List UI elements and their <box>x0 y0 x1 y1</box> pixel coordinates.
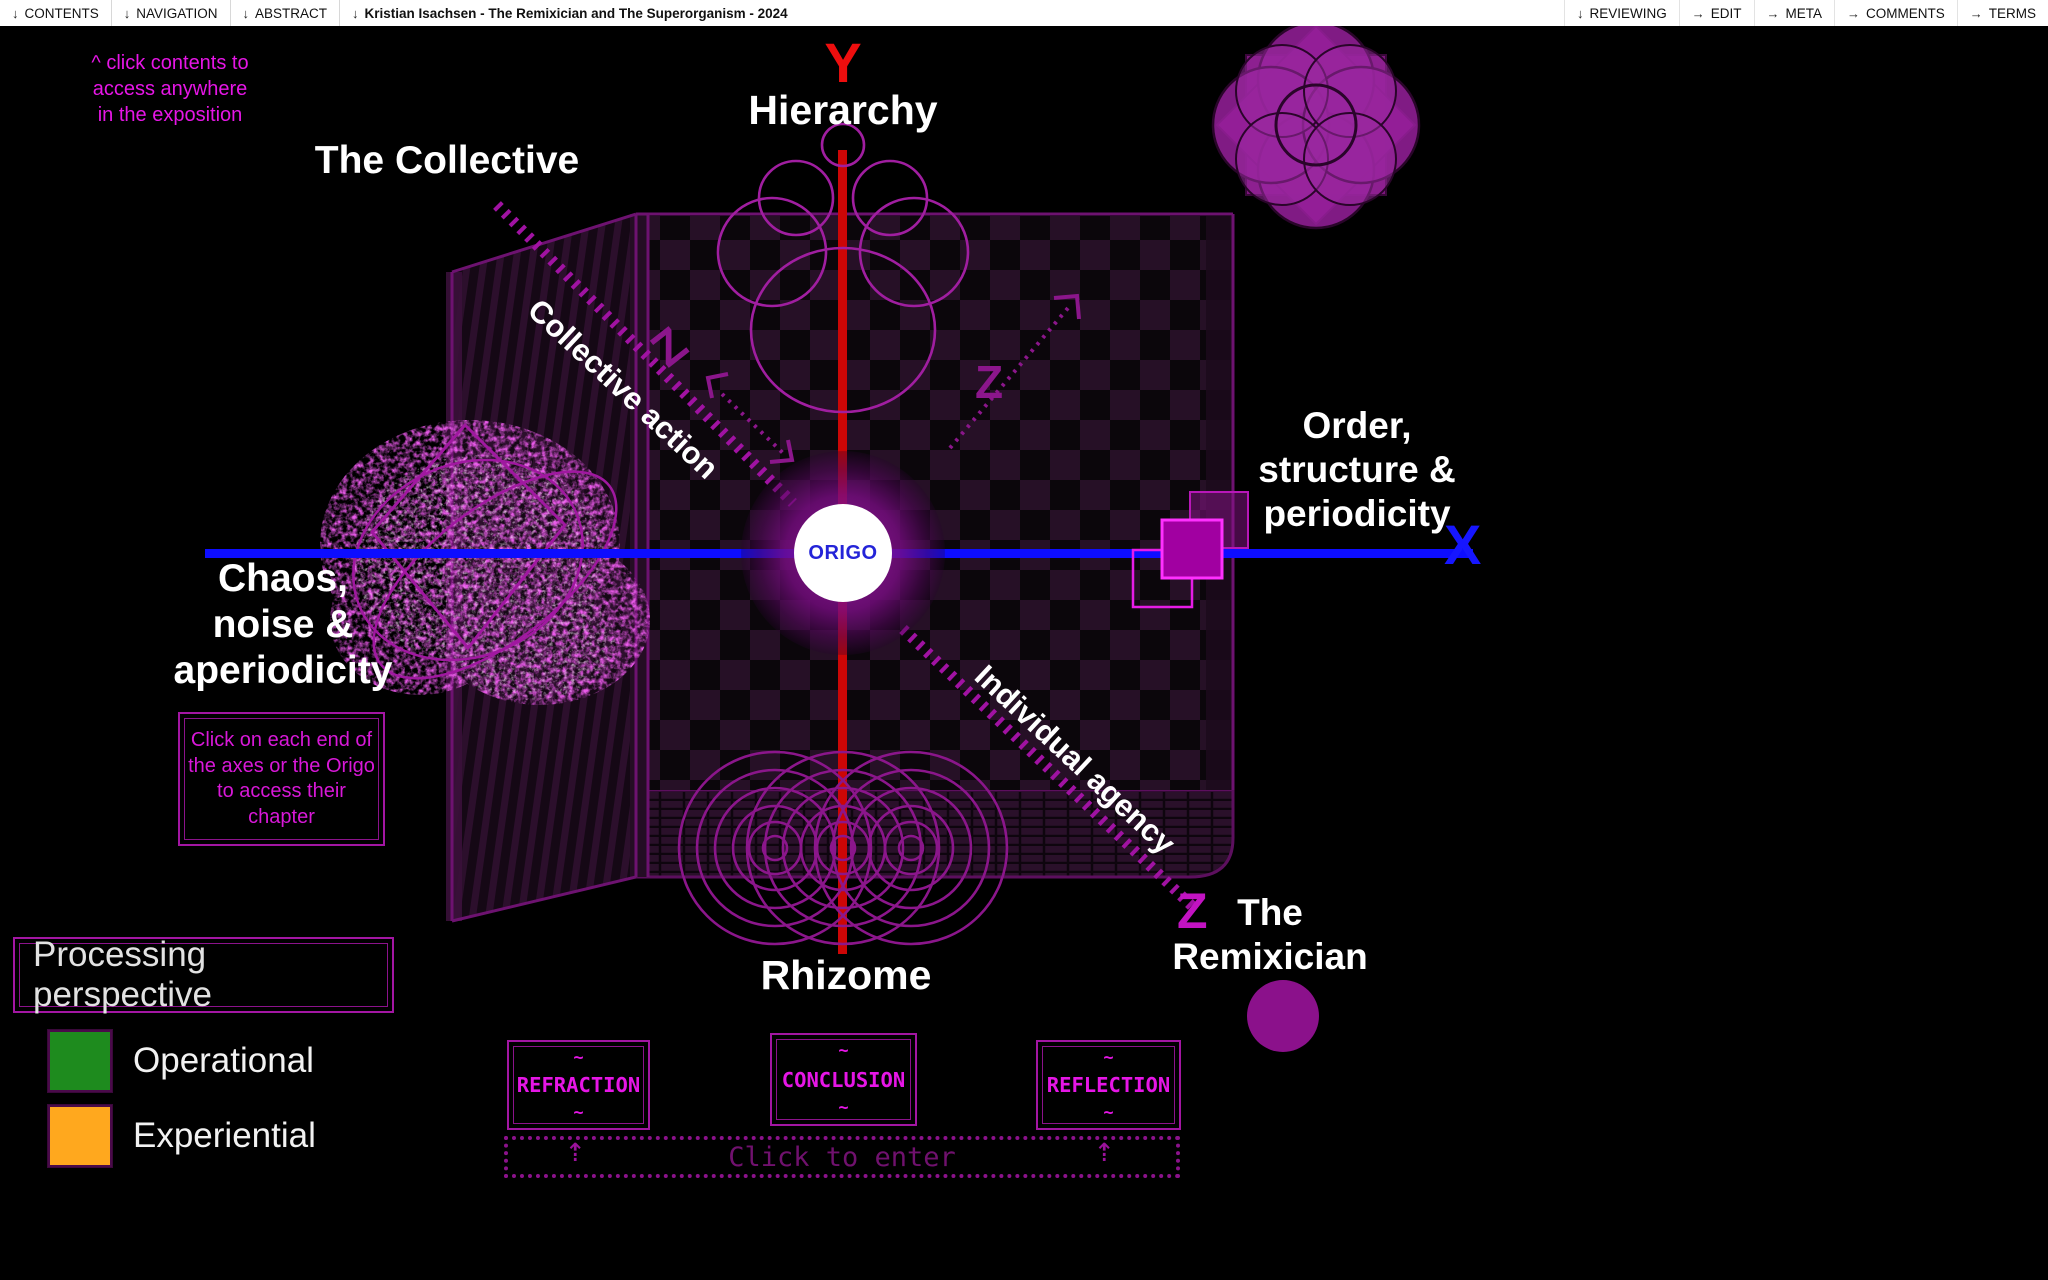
chapter-link-the-remixician[interactable]: The Remixician <box>1120 891 1420 979</box>
menu-label: CONTENTS <box>25 6 99 21</box>
tilde: ~ <box>573 1053 583 1063</box>
menu-label: REVIEWING <box>1589 6 1666 21</box>
legend-swatch-operational <box>48 1030 112 1092</box>
right-arrow-icon: → <box>1847 6 1860 21</box>
chapter-label: CONCLUSION <box>782 1068 905 1092</box>
menu-item-reviewing[interactable]: ↓ REVIEWING <box>1564 0 1679 26</box>
menu-right-group: ↓ REVIEWING → EDIT → META → COMMENTS → T… <box>1564 0 2048 26</box>
menu-left-group: ↓ CONTENTS ↓ NAVIGATION ↓ ABSTRACT ↓ Kri… <box>0 0 800 26</box>
menu-label: TERMS <box>1989 6 2036 21</box>
down-arrow-icon: ↓ <box>12 6 19 21</box>
label-line: The <box>1120 891 1420 935</box>
menu-item-abstract[interactable]: ↓ ABSTRACT <box>231 0 341 26</box>
instruction-line: chapter <box>180 805 383 831</box>
right-arrow-icon: → <box>1970 6 1983 21</box>
down-arrow-icon: ↓ <box>243 6 250 21</box>
mandala-flower-icon <box>1213 22 1419 228</box>
chapter-link-rhizome[interactable]: Rhizome <box>696 951 996 999</box>
down-arrow-icon: ↓ <box>352 6 359 21</box>
tilde: ~ <box>573 1108 583 1118</box>
chapter-box-conclusion[interactable]: ~ CONCLUSION ~ <box>770 1033 917 1126</box>
tilde: ~ <box>1103 1108 1113 1118</box>
down-arrow-icon: ↓ <box>1577 6 1584 21</box>
menu-item-terms[interactable]: → TERMS <box>1957 0 2048 26</box>
menu-label: COMMENTS <box>1866 6 1945 21</box>
chapter-link-the-collective[interactable]: The Collective <box>297 138 597 184</box>
right-arrow-icon: → <box>1692 6 1705 21</box>
menu-item-navigation[interactable]: ↓ NAVIGATION <box>112 0 231 26</box>
tilde: ~ <box>1103 1053 1113 1063</box>
instruction-line: the axes or the Origo <box>180 754 383 780</box>
dotted-up-arrow-icon: ⇡ <box>1094 1130 1114 1170</box>
menu-label: META <box>1786 6 1823 21</box>
exposition-canvas: ↓ CONTENTS ↓ NAVIGATION ↓ ABSTRACT ↓ Kri… <box>0 0 2048 1280</box>
label-line: structure & <box>1207 448 1507 492</box>
axes-instruction-box: Click on each end of the axes or the Ori… <box>178 712 385 846</box>
menu-label: EDIT <box>1711 6 1742 21</box>
label-line: Order, <box>1207 404 1507 448</box>
label-line: Chaos, <box>133 556 433 602</box>
instruction-line: to access their <box>180 779 383 805</box>
title-label: Kristian Isachsen - The Remixician and T… <box>365 6 788 21</box>
chapter-box-reflection[interactable]: ~ REFLECTION ~ <box>1036 1040 1181 1130</box>
menu-item-comments[interactable]: → COMMENTS <box>1834 0 1957 26</box>
chapter-link-order[interactable]: Order, structure & periodicity <box>1207 404 1507 536</box>
right-arrow-icon: → <box>1767 6 1780 21</box>
chapter-link-chaos[interactable]: Chaos, noise & aperiodicity <box>133 556 433 694</box>
instruction-line: Click on each end of <box>180 728 383 754</box>
legend-title-box: Processing perspective <box>13 937 394 1013</box>
legend-label-experiential: Experiential <box>133 1116 316 1156</box>
menu-label: NAVIGATION <box>136 6 217 21</box>
chapter-label: REFRACTION <box>517 1073 640 1097</box>
label-line: Remixician <box>1120 935 1420 979</box>
label-line: aperiodicity <box>133 648 433 694</box>
chapter-label: REFLECTION <box>1047 1073 1170 1097</box>
label-line: periodicity <box>1207 492 1507 536</box>
remixician-circle-icon <box>1247 980 1319 1052</box>
menu-item-contents[interactable]: ↓ CONTENTS <box>0 0 112 26</box>
enter-label: Click to enter <box>728 1142 956 1173</box>
legend-label-operational: Operational <box>133 1041 314 1081</box>
legend-title: Processing perspective <box>33 935 392 1015</box>
tilde: ~ <box>838 1046 848 1056</box>
exposition-title[interactable]: ↓ Kristian Isachsen - The Remixician and… <box>340 0 800 26</box>
z-axis-letter-mid: Z <box>975 355 1003 409</box>
click-to-enter-bar[interactable]: Click to enter <box>504 1136 1180 1178</box>
chapter-link-hierarchy[interactable]: Hierarchy <box>693 86 993 134</box>
chapter-box-refraction[interactable]: ~ REFRACTION ~ <box>507 1040 650 1130</box>
down-arrow-icon: ↓ <box>124 6 131 21</box>
label-line: noise & <box>133 602 433 648</box>
tilde: ~ <box>838 1103 848 1113</box>
menu-label: ABSTRACT <box>255 6 327 21</box>
menu-item-meta[interactable]: → META <box>1754 0 1835 26</box>
origo-button[interactable]: ORIGO <box>794 504 892 602</box>
dotted-up-arrow-icon: ⇡ <box>565 1130 585 1170</box>
top-menu-bar: ↓ CONTENTS ↓ NAVIGATION ↓ ABSTRACT ↓ Kri… <box>0 0 2048 26</box>
legend-swatch-experiential <box>48 1105 112 1167</box>
menu-item-edit[interactable]: → EDIT <box>1679 0 1754 26</box>
